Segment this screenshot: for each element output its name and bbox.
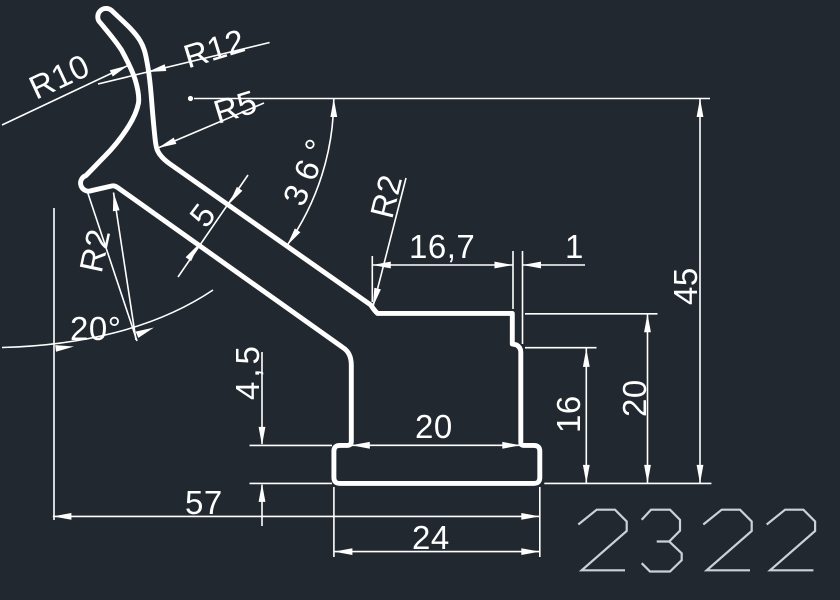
svg-text:57: 57 [185,484,223,521]
svg-text:16,7: 16,7 [409,228,475,265]
svg-text:16: 16 [550,395,587,433]
svg-text:4,5: 4,5 [229,342,266,400]
svg-text:45: 45 [667,267,704,305]
svg-text:20: 20 [415,408,453,445]
svg-text:20: 20 [616,379,653,417]
svg-text:1: 1 [565,228,584,265]
svg-text:24: 24 [412,519,450,556]
svg-text:20°: 20° [70,310,121,347]
